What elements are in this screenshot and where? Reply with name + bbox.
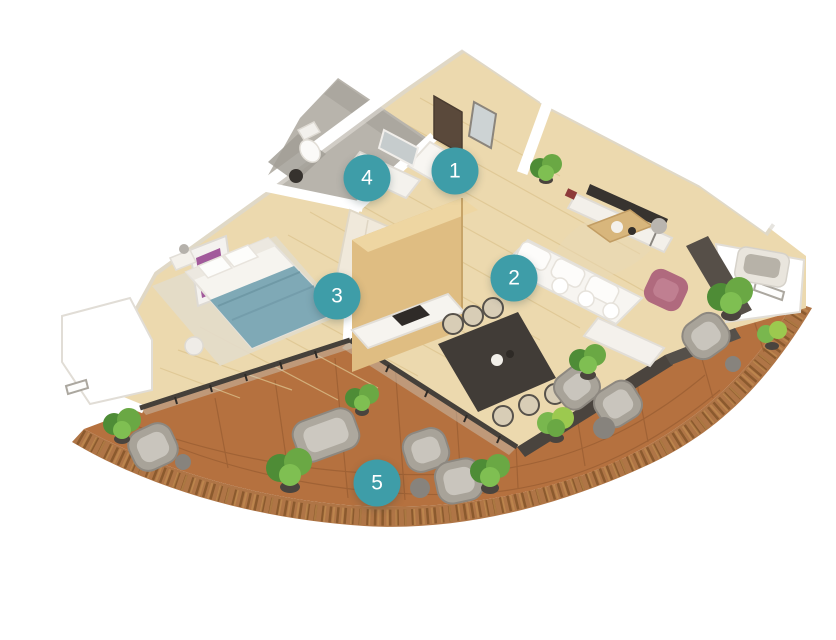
room-marker-5-number: 5	[371, 473, 383, 494]
room-marker-2[interactable]: 2	[491, 254, 538, 301]
dining-chair	[519, 395, 539, 415]
bedroom-pouf	[185, 337, 203, 355]
dining-chair	[493, 406, 513, 426]
dining-chair	[463, 306, 483, 326]
floor-lamp-shade	[651, 218, 667, 234]
table-tray	[491, 354, 503, 366]
balcony-side-table	[593, 417, 615, 439]
room-marker-3[interactable]: 3	[313, 273, 360, 320]
dining-chair	[443, 314, 463, 334]
balcony-side-table	[175, 454, 191, 470]
balcony-side-table	[410, 478, 430, 498]
room-marker-1-number: 1	[449, 160, 461, 181]
sofa-pillow	[552, 278, 568, 294]
laundry-basket	[289, 169, 303, 183]
coffee-bowl	[628, 227, 636, 235]
room-marker-3-number: 3	[331, 286, 343, 307]
sofa-pillow	[603, 303, 619, 319]
room-marker-4[interactable]: 4	[344, 154, 391, 201]
room-marker-5[interactable]: 5	[354, 460, 401, 507]
bedside-lamp	[179, 244, 189, 254]
sofa-pillow	[578, 291, 594, 307]
room-marker-1[interactable]: 1	[431, 147, 478, 194]
table-bowl	[506, 350, 514, 358]
dining-chair	[483, 298, 503, 318]
balcony-side-table	[725, 356, 741, 372]
coffee-tray	[611, 221, 623, 233]
floor-plan-render	[0, 0, 836, 640]
room-marker-4-number: 4	[361, 167, 373, 188]
floor-plan-stage: 1 2 3 4 5	[0, 0, 836, 640]
room-marker-2-number: 2	[508, 267, 520, 288]
